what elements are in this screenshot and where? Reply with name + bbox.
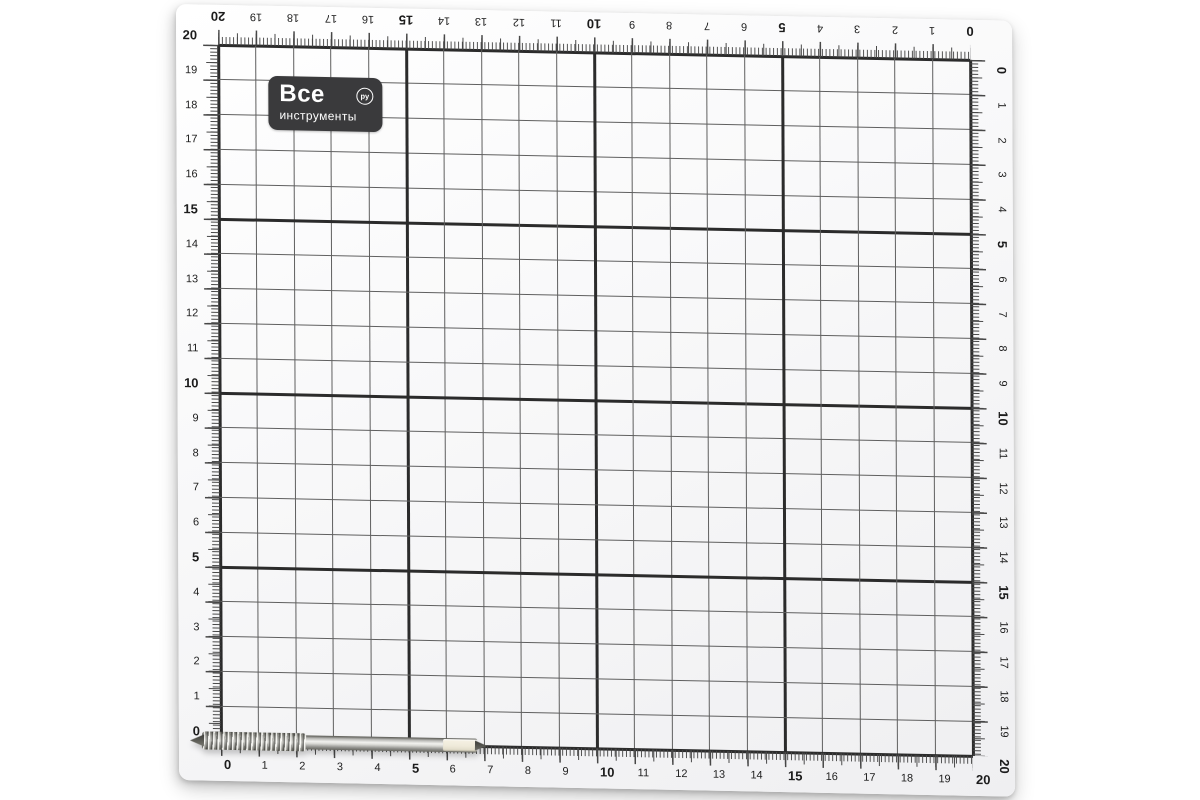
ruler-number: 2 — [995, 129, 1007, 151]
ruler-number: 7 — [696, 19, 718, 31]
ruler-number: 12 — [180, 307, 198, 319]
ruler-number: 8 — [181, 447, 199, 459]
ruler-number: 12 — [675, 768, 697, 780]
ruler-number: 15 — [395, 13, 417, 25]
ruler-number: 11 — [997, 442, 1009, 464]
ruler-number: 6 — [450, 763, 472, 775]
mat: 20191817161514131211109876543210 0123456… — [176, 4, 1015, 797]
ruler-number: 0 — [224, 759, 246, 771]
ruler-number: 5 — [771, 21, 793, 33]
ruler-number: 13 — [997, 512, 1009, 534]
tap-square-drive — [443, 739, 477, 752]
ruler-number: 14 — [750, 769, 772, 781]
ruler-number: 1 — [995, 94, 1007, 116]
ruler-number: 0 — [959, 25, 981, 37]
ruler-right-numbers: 01234567891011121314151617181920 — [970, 60, 1015, 757]
ruler-number: 16 — [357, 13, 379, 25]
brand-logo-line2: инструменты — [279, 108, 373, 124]
ruler-number: 3 — [337, 761, 359, 773]
ruler-number: 4 — [809, 22, 831, 34]
ruler-number: 16 — [180, 168, 198, 180]
ruler-number: 11 — [638, 767, 660, 779]
ruler-number: 1 — [921, 24, 943, 36]
ruler-number: 9 — [181, 412, 199, 424]
ruler-number: 20 — [976, 774, 998, 786]
ruler-number: 19 — [179, 64, 197, 76]
brand-logo-badge-icon: ру — [356, 87, 373, 104]
ruler-number: 14 — [997, 547, 1009, 569]
ruler-number: 2 — [884, 23, 906, 35]
ruler-number: 20 — [179, 29, 197, 41]
ruler-number: 4 — [181, 586, 199, 598]
ruler-left-numbers: 20191817161514131211109876543210 — [176, 44, 221, 741]
ruler-number: 0 — [995, 59, 1007, 81]
ruler-number: 17 — [998, 651, 1010, 673]
ruler-number: 19 — [938, 773, 960, 785]
ruler-number: 13 — [180, 273, 198, 285]
grid — [218, 45, 973, 756]
ruler-number: 15 — [788, 770, 810, 782]
ruler-number: 15 — [997, 581, 1009, 603]
ruler-left: 20191817161514131211109876543210 — [176, 44, 221, 741]
ruler-number: 16 — [997, 616, 1009, 638]
ruler-number: 14 — [433, 14, 455, 26]
ruler-number: 18 — [179, 99, 197, 111]
ruler-number: 12 — [997, 477, 1009, 499]
ruler-number: 5 — [181, 551, 199, 563]
ruler-number: 14 — [180, 238, 198, 250]
ruler-number: 18 — [998, 686, 1010, 708]
ruler-number: 3 — [996, 164, 1008, 186]
ruler-number: 7 — [181, 481, 199, 493]
ruler-right: 01234567891011121314151617181920 — [970, 60, 1015, 757]
ruler-number: 3 — [846, 22, 868, 34]
ruler-number: 6 — [181, 516, 199, 528]
ruler-number: 13 — [470, 15, 492, 27]
ruler-number: 1 — [262, 760, 284, 772]
ruler-number: 19 — [245, 10, 267, 22]
ruler-number: 13 — [713, 769, 735, 781]
ruler-number: 2 — [182, 655, 200, 667]
ruler-number: 5 — [996, 233, 1008, 255]
ruler-number: 6 — [733, 20, 755, 32]
ruler-number: 8 — [658, 19, 680, 31]
ruler-number: 9 — [562, 766, 584, 778]
ruler-number: 8 — [525, 765, 547, 777]
tap-cutting-tip — [190, 734, 204, 746]
ruler-number: 15 — [180, 203, 198, 215]
ruler-number: 10 — [583, 17, 605, 29]
ruler-number: 5 — [412, 763, 434, 775]
ruler-number: 4 — [996, 199, 1008, 221]
ruler-number: 20 — [998, 755, 1010, 777]
ruler-number: 9 — [996, 373, 1008, 395]
ruler-number: 19 — [998, 721, 1010, 743]
ruler-number: 12 — [508, 16, 530, 28]
ruler-number: 9 — [621, 18, 643, 30]
ruler-number: 3 — [181, 621, 199, 633]
ruler-number: 11 — [545, 16, 567, 28]
ruler-number: 7 — [996, 303, 1008, 325]
brand-logo: Все ру инструменты — [268, 76, 382, 132]
ruler-number: 1 — [182, 690, 200, 702]
brand-logo-line1: Все — [279, 81, 325, 108]
ruler-number: 17 — [180, 133, 198, 145]
ruler-number: 11 — [180, 342, 198, 354]
ruler-number: 7 — [487, 764, 509, 776]
ruler-number: 17 — [320, 12, 342, 24]
ruler-number: 2 — [299, 760, 321, 772]
product-photo: 20191817161514131211109876543210 0123456… — [0, 0, 1200, 800]
tap-thread-section — [202, 731, 306, 751]
ruler-number: 10 — [997, 407, 1009, 429]
ruler-number: 6 — [996, 268, 1008, 290]
ruler-number: 18 — [282, 11, 304, 23]
ruler-number: 10 — [600, 766, 622, 778]
tap-rear-point — [475, 741, 487, 751]
ruler-number: 16 — [826, 771, 848, 783]
ruler-number: 20 — [207, 10, 229, 22]
ruler-number: 8 — [996, 338, 1008, 360]
ruler-number: 17 — [863, 772, 885, 784]
ruler-number: 10 — [180, 377, 198, 389]
ruler-number: 18 — [901, 772, 923, 784]
ruler-number: 4 — [374, 762, 396, 774]
